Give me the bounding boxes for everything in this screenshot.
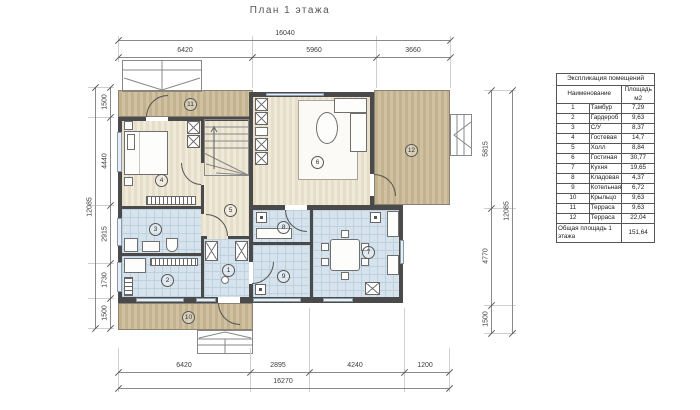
room-marker-3: 3 — [149, 223, 162, 236]
washing-machine — [124, 238, 138, 252]
room-name: Крыльцо — [589, 194, 622, 204]
room-area: 8,37 — [622, 124, 655, 134]
explication-row: 5Холл8,84 — [557, 144, 655, 154]
shelf-unit-living-4 — [255, 152, 268, 165]
room-marker-10: 10 — [182, 311, 195, 324]
dim-bottom-seg-3: 4240 — [347, 362, 363, 369]
dim-bottom-seg-1: 6420 — [176, 362, 192, 369]
explication-table-body: Экспликация помещений Наименование Площа… — [557, 74, 655, 104]
drawing-canvas: План 1 этажа — [0, 0, 700, 410]
dim-left-seg-3: 2915 — [102, 226, 109, 242]
window-living-top — [266, 93, 324, 96]
total-area-value: 151,64 — [622, 224, 655, 243]
room-marker-6: 6 — [311, 156, 324, 169]
room-area: 7,29 — [622, 104, 655, 114]
dim-bottom-total: 16270 — [273, 378, 292, 385]
room-marker-label: 6 — [316, 159, 320, 166]
room-no: 1 — [557, 104, 590, 114]
room-marker-label: 5 — [229, 207, 233, 214]
explication-row: 2Гардероб9,63 — [557, 114, 655, 124]
wall-room8-room9 — [253, 242, 310, 245]
closet-room4-a — [187, 121, 200, 134]
toilet-room3 — [166, 238, 178, 252]
window-room2-left — [117, 262, 122, 292]
kitchen-counter-upper — [387, 211, 399, 237]
room-no: 7 — [557, 164, 590, 174]
steps-porch-bottom — [197, 330, 253, 354]
ext-line — [252, 36, 253, 88]
dim-line-bottom-total — [118, 388, 449, 389]
ceiling-light-vestibule — [221, 276, 229, 284]
kitchen-counter-lower — [387, 255, 399, 275]
room-name: Кладовая — [589, 174, 622, 184]
room-marker-7: 7 — [362, 246, 375, 259]
room-name: Гостевая — [589, 134, 622, 144]
room-area: 22,04 — [622, 214, 655, 224]
room-marker-9: 9 — [277, 270, 290, 283]
explication-row: 11Терраса9,63 — [557, 204, 655, 214]
room-name: Холл — [589, 144, 622, 154]
column-header-name: Наименование — [557, 86, 622, 104]
window-bottom-kitchen — [323, 298, 353, 302]
duct-kitchen — [365, 282, 380, 295]
room-marker-5: 5 — [224, 204, 237, 217]
chair-bottom — [341, 272, 349, 280]
room-area: 19,65 — [622, 164, 655, 174]
equipment-kitchen — [370, 212, 381, 223]
room-area: 30,77 — [622, 154, 655, 164]
room-marker-2: 2 — [161, 274, 174, 287]
dim-line-right-total — [512, 90, 513, 333]
explication-row: 9Котельная6,72 — [557, 184, 655, 194]
dim-bottom-seg-4: 1200 — [417, 362, 433, 369]
dim-top-seg-1: 6420 — [177, 47, 193, 54]
wall-mid-horizontal-right — [307, 205, 403, 210]
steps-top-left — [122, 60, 202, 92]
explication-row: 10Крыльцо9,63 — [557, 194, 655, 204]
room-name: Кухня — [589, 164, 622, 174]
wall-room3-room2 — [122, 253, 201, 256]
steps-terrace12-right — [450, 114, 472, 156]
room-area: 6,72 — [622, 184, 655, 194]
page-title: План 1 этажа — [215, 5, 365, 16]
equipment-room8 — [256, 212, 267, 223]
bed-fold-line — [139, 132, 140, 174]
nightstand-bottom — [124, 177, 133, 186]
room-marker-label: 7 — [367, 249, 371, 256]
explication-row: 7Кухня19,65 — [557, 164, 655, 174]
explication-total-row: Общая площадь 1 этажа 151,64 — [557, 224, 655, 243]
shelf-unit-living-1 — [255, 98, 268, 111]
room-no: 11 — [557, 204, 590, 214]
room-area: 4,37 — [622, 174, 655, 184]
room-name: Тамбур — [589, 104, 622, 114]
cabinet-room2 — [124, 258, 146, 273]
dim-right-total: 12085 — [504, 201, 511, 220]
tv-stand-living — [255, 127, 268, 136]
shelf-unit-living-3 — [255, 138, 268, 151]
room-area: 9,63 — [622, 204, 655, 214]
duct-vestibule-left — [205, 241, 218, 261]
wall-hall-divider-b — [201, 185, 204, 214]
total-area-label: Общая площадь 1 этажа — [557, 224, 622, 243]
dim-left-seg-5: 1500 — [102, 305, 109, 321]
room-no: 8 — [557, 174, 590, 184]
room-no: 2 — [557, 114, 590, 124]
room-marker-label: 2 — [166, 277, 170, 284]
closet-room4-b — [187, 135, 200, 148]
explication-row: 6Гостиная30,77 — [557, 154, 655, 164]
room-no: 10 — [557, 194, 590, 204]
dresser-room4 — [146, 196, 196, 205]
bed-pillow — [127, 134, 135, 150]
room-marker-12: 12 — [405, 144, 418, 157]
dim-top-total: 16040 — [275, 30, 294, 37]
dim-line-top-total — [118, 40, 450, 41]
room-no: 9 — [557, 184, 590, 194]
explication-total: Общая площадь 1 этажа 151,64 — [557, 224, 655, 243]
room-no: 6 — [557, 154, 590, 164]
explication-row: 1Тамбур7,29 — [557, 104, 655, 114]
room-marker-label: 10 — [185, 314, 192, 321]
ext-line — [309, 308, 310, 392]
window-room4-left — [117, 132, 122, 172]
window-bottom-vestibule — [196, 298, 216, 302]
explication-row: 3С/У8,37 — [557, 124, 655, 134]
room-marker-label: 11 — [187, 101, 194, 108]
dim-bottom-seg-2: 2895 — [270, 362, 286, 369]
dining-table — [330, 239, 360, 271]
dim-left-seg-2: 4440 — [102, 153, 109, 169]
dim-left-seg-4: 1730 — [102, 272, 109, 288]
floor-plan-sheet: { "title": "План 1 этажа", "plan": { "ro… — [0, 0, 700, 410]
window-kitchen-right — [400, 240, 404, 264]
dim-line-left-total — [95, 87, 96, 328]
ext-line — [450, 36, 451, 88]
room-name: Гостиная — [589, 154, 622, 164]
chair-right-2 — [361, 258, 369, 266]
explication-table: Экспликация помещений Наименование Площа… — [556, 73, 655, 243]
room-marker-11: 11 — [184, 98, 197, 111]
window-room3-left — [117, 218, 122, 246]
chair-left-1 — [321, 243, 329, 251]
room-marker-4: 4 — [155, 174, 168, 187]
boiler-room9 — [255, 284, 266, 295]
chair-left-2 — [321, 258, 329, 266]
room-no: 12 — [557, 214, 590, 224]
room-area: 9,63 — [622, 114, 655, 124]
sink-room3 — [142, 241, 160, 252]
explication-title-row: Экспликация помещений — [557, 74, 655, 86]
sofa-top — [334, 98, 367, 113]
dim-line-left-segments — [110, 87, 111, 328]
room-name: Терраса — [589, 214, 622, 224]
window-bottom-room9 — [253, 298, 301, 302]
coffee-table-oval — [316, 112, 338, 144]
ext-line — [376, 36, 377, 88]
room-marker-label: 8 — [282, 224, 286, 231]
explication-row: 8Кладовая4,37 — [557, 174, 655, 184]
room-area: 14,7 — [622, 134, 655, 144]
window-bottom-room2 — [136, 298, 184, 302]
room-marker-8: 8 — [277, 221, 290, 234]
wall-living-right-upper — [370, 92, 374, 174]
wall-vestibule-top-b — [228, 236, 249, 239]
room-marker-label: 12 — [408, 147, 415, 154]
room-area: 8,84 — [622, 144, 655, 154]
dim-left-total: 12085 — [87, 197, 94, 216]
wall-vestibule-top-a — [204, 236, 207, 239]
sofa-right — [350, 113, 367, 152]
room-marker-label: 1 — [227, 267, 231, 274]
room-no: 5 — [557, 144, 590, 154]
staircase — [204, 119, 249, 176]
room-area: 9,63 — [622, 194, 655, 204]
hanger-rail-room2 — [150, 258, 198, 266]
wall-hall-divider-c — [201, 236, 204, 297]
dim-left-seg-1: 1500 — [102, 94, 109, 110]
room-marker-label: 3 — [154, 226, 158, 233]
dim-top-seg-3: 3660 — [405, 47, 421, 54]
duct-vestibule-right — [235, 241, 248, 261]
chair-top — [341, 230, 349, 238]
room-no: 4 — [557, 134, 590, 144]
room-name: Гардероб — [589, 114, 622, 124]
wall-mid-horizontal-left — [249, 205, 285, 210]
wall-room4-room3 — [118, 206, 204, 209]
ext-line — [404, 308, 405, 392]
room-marker-label: 9 — [282, 273, 286, 280]
explication-title: Экспликация помещений — [557, 74, 655, 86]
wall-living-left-upper — [249, 97, 253, 262]
dim-line-right-segments — [491, 90, 492, 333]
explication-row: 4Гостевая14,7 — [557, 134, 655, 144]
dim-right-seg-1: 5815 — [483, 141, 490, 157]
shelf-unit-living-2 — [255, 112, 268, 125]
room-marker-1: 1 — [222, 264, 235, 277]
explication-row: 12Терраса22,04 — [557, 214, 655, 224]
column-header-area: Площадь м2 — [622, 86, 655, 104]
explication-rows: 1Тамбур7,292Гардероб9,633С/У8,374Гостева… — [557, 104, 655, 224]
room-name: Котельная — [589, 184, 622, 194]
dim-top-seg-2: 5960 — [306, 47, 322, 54]
room-marker-label: 4 — [160, 177, 164, 184]
room-no: 3 — [557, 124, 590, 134]
dim-line-bottom-segments — [118, 372, 449, 373]
shelves-room2-left — [124, 277, 133, 296]
wall-rooms89-kitchen — [310, 210, 313, 297]
dim-right-seg-3: 1500 — [483, 311, 490, 327]
nightstand-top — [124, 121, 133, 130]
dim-right-seg-2: 4770 — [483, 248, 490, 264]
room-name: Терраса — [589, 204, 622, 214]
explication-header-row: Наименование Площадь м2 — [557, 86, 655, 104]
dim-line-top-segments — [118, 57, 450, 58]
wall-living-left-lower — [249, 284, 253, 297]
room-name: С/У — [589, 124, 622, 134]
